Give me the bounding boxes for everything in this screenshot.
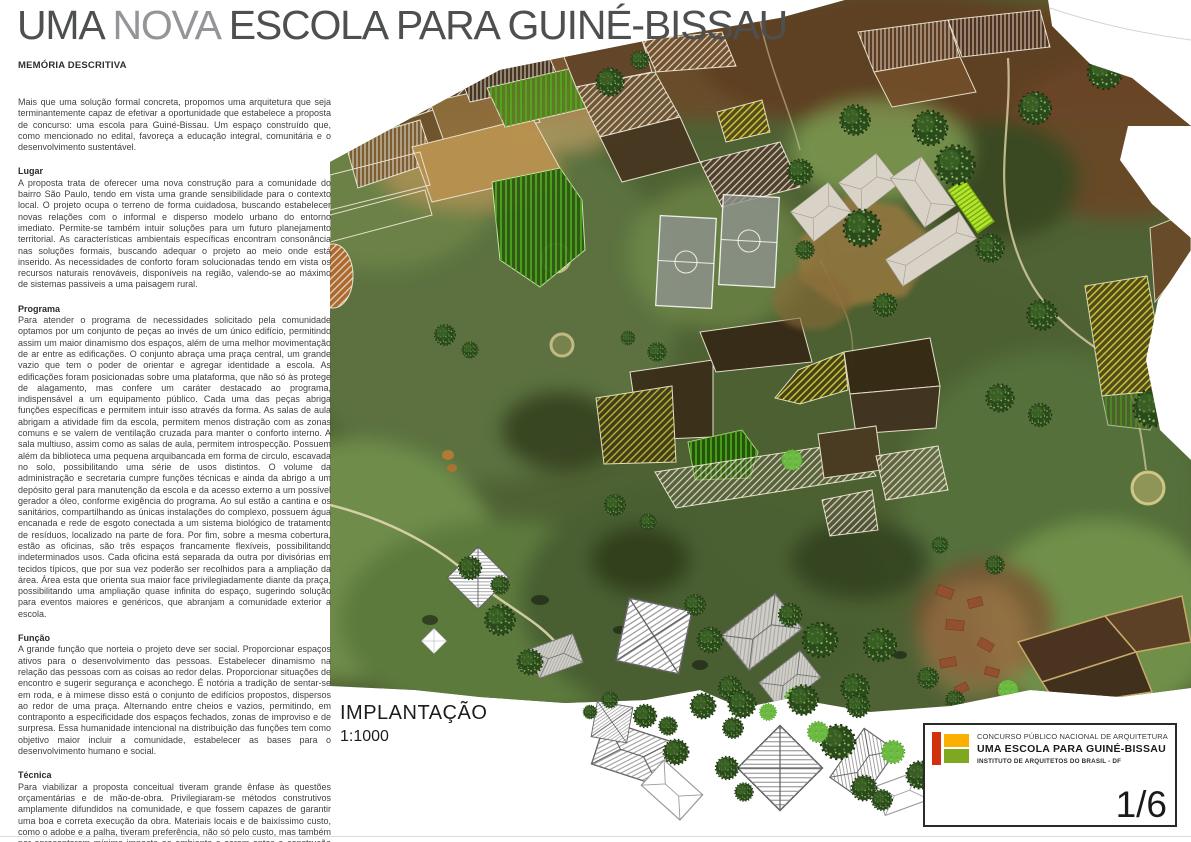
title-word-nova: NOVA bbox=[112, 2, 218, 48]
site-plan-scale: 1:1000 bbox=[340, 728, 487, 746]
section-body-tecnica: Para viabilizar a proposta conceitual ti… bbox=[18, 782, 331, 842]
competition-subject: UMA ESCOLA PARA GUINÉ-BISSAU bbox=[977, 743, 1172, 755]
page-number: 1/6 bbox=[1116, 786, 1167, 823]
logo-red-bar bbox=[932, 732, 941, 765]
satellite-basemap bbox=[200, 0, 1191, 720]
section-body-lugar: A proposta trata de oferecer uma nova co… bbox=[18, 178, 331, 291]
section-heading-tecnica: Técnica bbox=[18, 770, 331, 781]
memoria-heading: MEMÓRIA DESCRITIVA bbox=[18, 60, 331, 71]
title-block-text: CONCURSO PÚBLICO NACIONAL DE ARQUITETURA… bbox=[977, 732, 1172, 765]
memoria-intro: Mais que uma solução formal concreta, pr… bbox=[18, 97, 331, 153]
title-block: CONCURSO PÚBLICO NACIONAL DE ARQUITETURA… bbox=[923, 723, 1177, 827]
iab-logo bbox=[932, 732, 972, 765]
title-rest: ESCOLA PARA GUINÉ-BISSAU bbox=[229, 2, 787, 48]
logo-yellow-square bbox=[944, 734, 969, 747]
site-plan-label: IMPLANTAÇÃO 1:1000 bbox=[340, 702, 487, 746]
section-heading-lugar: Lugar bbox=[18, 166, 331, 177]
section-body-programa: Para atender o programa de necessidades … bbox=[18, 315, 331, 620]
institute-name: INSTITUTO DE ARQUITETOS DO BRASIL - DF bbox=[977, 758, 1172, 765]
section-heading-funcao: Função bbox=[18, 633, 331, 644]
site-plan-title: IMPLANTAÇÃO bbox=[340, 702, 487, 725]
memoria-descritiva: MEMÓRIA DESCRITIVA Mais que uma solução … bbox=[18, 60, 331, 842]
logo-green-square bbox=[944, 749, 969, 763]
section-heading-programa: Programa bbox=[18, 304, 331, 315]
competition-board: UMA NOVA ESCOLA PARA GUINÉ-BISSAU MEMÓRI… bbox=[0, 0, 1191, 842]
competition-name: CONCURSO PÚBLICO NACIONAL DE ARQUITETURA bbox=[977, 732, 1172, 741]
section-body-funcao: A grande função que norteia o projeto de… bbox=[18, 644, 331, 757]
title-word-uma: UMA bbox=[17, 2, 102, 48]
page-title: UMA NOVA ESCOLA PARA GUINÉ-BISSAU bbox=[17, 2, 787, 49]
